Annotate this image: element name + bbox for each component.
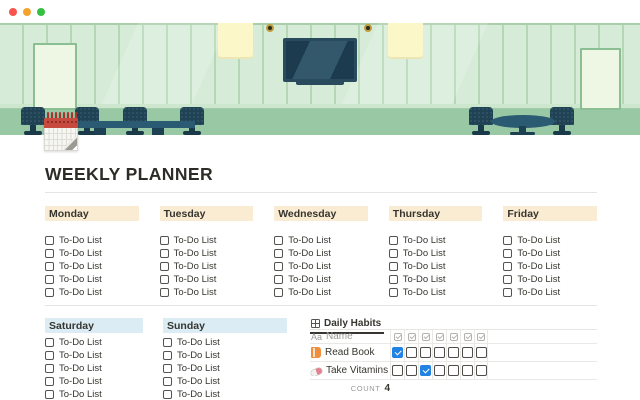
day-column-tuesday: TuesdayTo-Do ListTo-Do ListTo-Do ListTo-… <box>160 206 254 298</box>
todo-item: To-Do List <box>503 247 597 260</box>
todo-list: To-Do ListTo-Do ListTo-Do ListTo-Do List… <box>45 234 139 298</box>
traffic-light-zoom-button[interactable] <box>37 8 45 16</box>
todo-checkbox[interactable] <box>274 288 283 297</box>
todo-list: To-Do ListTo-Do ListTo-Do ListTo-Do List… <box>45 336 143 400</box>
day-column-sunday: SundayTo-Do ListTo-Do ListTo-Do ListTo-D… <box>163 318 287 400</box>
todo-label: To-Do List <box>517 248 560 259</box>
habit-checkbox[interactable] <box>420 365 431 376</box>
count-value: 4 <box>384 383 390 394</box>
habits-header-row: Aa Name <box>310 330 597 344</box>
day-column-wednesday: WednesdayTo-Do ListTo-Do ListTo-Do ListT… <box>274 206 368 298</box>
wall-tv <box>283 38 357 82</box>
habit-checkbox[interactable] <box>420 347 431 358</box>
todo-label: To-Do List <box>403 261 446 272</box>
todo-checkbox[interactable] <box>503 249 512 258</box>
todo-checkbox[interactable] <box>45 236 54 245</box>
todo-label: To-Do List <box>288 235 331 246</box>
todo-label: To-Do List <box>59 235 102 246</box>
office-chair <box>21 107 45 135</box>
book-icon <box>311 347 321 358</box>
checkbox-property-icon <box>422 333 430 341</box>
bottom-section: SaturdayTo-Do ListTo-Do ListTo-Do ListTo… <box>45 318 597 400</box>
todo-item: To-Do List <box>274 260 368 273</box>
habit-checkbox-cell <box>390 344 404 361</box>
todo-item: To-Do List <box>389 286 483 299</box>
habit-checkbox-cell <box>390 362 404 379</box>
todo-item: To-Do List <box>389 260 483 273</box>
todo-label: To-Do List <box>174 274 217 285</box>
habit-day-column-header[interactable] <box>418 330 432 343</box>
day-header: Saturday <box>45 318 143 333</box>
todo-item: To-Do List <box>503 286 597 299</box>
todo-item: To-Do List <box>160 247 254 260</box>
todo-label: To-Do List <box>517 287 560 298</box>
day-header: Friday <box>503 206 597 221</box>
todo-item: To-Do List <box>503 273 597 286</box>
tab-label: Daily Habits <box>324 318 381 329</box>
checkbox-property-icon <box>477 333 485 341</box>
wall-clock-dot-right <box>364 24 372 32</box>
habit-checkbox[interactable] <box>462 347 473 358</box>
todo-checkbox[interactable] <box>163 351 172 360</box>
habit-name-label: Read Book <box>325 347 374 358</box>
habit-checkbox[interactable] <box>476 365 487 376</box>
todo-checkbox[interactable] <box>163 364 172 373</box>
todo-label: To-Do List <box>517 261 560 272</box>
todo-checkbox[interactable] <box>45 390 54 399</box>
day-column-monday: MondayTo-Do ListTo-Do ListTo-Do ListTo-D… <box>45 206 139 298</box>
habit-name-cell[interactable]: Read Book <box>310 347 390 358</box>
day-header: Tuesday <box>160 206 254 221</box>
todo-label: To-Do List <box>59 274 102 285</box>
todo-checkbox[interactable] <box>274 262 283 271</box>
todo-item: To-Do List <box>45 336 143 349</box>
todo-item: To-Do List <box>503 260 597 273</box>
habit-checkbox[interactable] <box>448 365 459 376</box>
habit-checkbox[interactable] <box>392 365 403 376</box>
todo-checkbox[interactable] <box>45 351 54 360</box>
todo-list: To-Do ListTo-Do ListTo-Do ListTo-Do List… <box>503 234 597 298</box>
habit-checkbox[interactable] <box>434 347 445 358</box>
habit-day-column-header[interactable] <box>446 330 460 343</box>
habit-checkbox-cell <box>404 344 418 361</box>
habit-day-column-header[interactable] <box>460 330 474 343</box>
todo-label: To-Do List <box>59 287 102 298</box>
todo-label: To-Do List <box>174 248 217 259</box>
todo-item: To-Do List <box>163 362 287 375</box>
todo-label: To-Do List <box>174 287 217 298</box>
todo-label: To-Do List <box>174 235 217 246</box>
todo-item: To-Do List <box>45 234 139 247</box>
header-cover-illustration <box>0 23 640 135</box>
habit-checkbox-cell <box>432 362 446 379</box>
habit-checkbox[interactable] <box>392 347 403 358</box>
todo-item: To-Do List <box>274 247 368 260</box>
habit-checkbox[interactable] <box>476 347 487 358</box>
habit-name-cell[interactable]: Take Vitamins <box>310 365 390 376</box>
todo-checkbox[interactable] <box>389 249 398 258</box>
checkbox-property-icon <box>450 333 458 341</box>
day-header: Thursday <box>389 206 483 221</box>
habit-checkbox-cell <box>474 362 488 379</box>
day-header: Monday <box>45 206 139 221</box>
habit-checkbox-cell <box>418 344 432 361</box>
table-leg <box>94 128 106 135</box>
todo-label: To-Do List <box>288 274 331 285</box>
habit-checkbox[interactable] <box>406 365 417 376</box>
todo-item: To-Do List <box>45 362 143 375</box>
todo-item: To-Do List <box>45 388 143 400</box>
todo-list: To-Do ListTo-Do ListTo-Do ListTo-Do List… <box>160 234 254 298</box>
habit-checkbox-cell <box>418 362 432 379</box>
todo-checkbox[interactable] <box>163 338 172 347</box>
notion-weekly-planner-page: WEEKLY PLANNER MondayTo-Do ListTo-Do Lis… <box>0 0 640 400</box>
habit-checkbox-cell <box>446 344 460 361</box>
todo-label: To-Do List <box>59 337 102 348</box>
habit-checkbox-cell <box>474 344 488 361</box>
todo-item: To-Do List <box>45 375 143 388</box>
todo-checkbox[interactable] <box>389 288 398 297</box>
checkbox-property-icon <box>408 333 416 341</box>
whiteboard-left <box>33 43 77 110</box>
habit-row: Take Vitamins <box>310 362 597 380</box>
day-header: Wednesday <box>274 206 368 221</box>
traffic-light-minimize-button[interactable] <box>23 8 31 16</box>
habit-checkbox[interactable] <box>462 365 473 376</box>
todo-checkbox[interactable] <box>45 249 54 258</box>
chair-base <box>126 131 144 135</box>
todo-item: To-Do List <box>274 286 368 299</box>
calendar-red-band <box>44 118 78 128</box>
table-leg <box>152 128 164 135</box>
window-titlebar <box>0 0 640 23</box>
pill-icon <box>310 367 322 376</box>
todo-label: To-Do List <box>403 274 446 285</box>
habit-checkbox-cell <box>446 362 460 379</box>
todo-list: To-Do ListTo-Do ListTo-Do ListTo-Do List… <box>389 234 483 298</box>
todo-label: To-Do List <box>59 363 102 374</box>
todo-item: To-Do List <box>163 375 287 388</box>
name-header-label: Name <box>326 331 353 342</box>
tv-screen <box>286 41 354 79</box>
habit-checkbox-cell <box>432 344 446 361</box>
name-column-header[interactable]: Aa Name <box>310 331 390 342</box>
todo-item: To-Do List <box>160 286 254 299</box>
text-property-icon: Aa <box>311 332 322 342</box>
chair-base <box>24 131 42 135</box>
tv-base <box>296 82 344 85</box>
chair-back <box>469 107 493 125</box>
chair-base <box>472 131 490 135</box>
todo-item: To-Do List <box>45 349 143 362</box>
habit-checkbox[interactable] <box>434 365 445 376</box>
day-header: Sunday <box>163 318 287 333</box>
todo-label: To-Do List <box>174 261 217 272</box>
todo-label: To-Do List <box>288 248 331 259</box>
habit-checkbox[interactable] <box>448 347 459 358</box>
checkbox-property-icon <box>394 333 402 341</box>
todo-checkbox[interactable] <box>160 288 169 297</box>
todo-checkbox[interactable] <box>274 236 283 245</box>
day-column-saturday: SaturdayTo-Do ListTo-Do ListTo-Do ListTo… <box>45 318 143 400</box>
todo-item: To-Do List <box>389 247 483 260</box>
todo-list: To-Do ListTo-Do ListTo-Do ListTo-Do List… <box>274 234 368 298</box>
todo-checkbox[interactable] <box>274 249 283 258</box>
habit-checkbox-cell <box>460 362 474 379</box>
todo-label: To-Do List <box>177 363 220 374</box>
todo-item: To-Do List <box>503 234 597 247</box>
todo-checkbox[interactable] <box>503 288 512 297</box>
todo-checkbox[interactable] <box>45 275 54 284</box>
todo-checkbox[interactable] <box>45 288 54 297</box>
todo-checkbox[interactable] <box>45 338 54 347</box>
habit-checkbox-cell <box>404 362 418 379</box>
todo-checkbox[interactable] <box>160 262 169 271</box>
divider <box>45 192 597 193</box>
todo-checkbox[interactable] <box>160 236 169 245</box>
checkbox-property-icon <box>436 333 444 341</box>
page-title: WEEKLY PLANNER <box>45 164 213 185</box>
todo-label: To-Do List <box>59 350 102 361</box>
todo-item: To-Do List <box>163 349 287 362</box>
todo-label: To-Do List <box>288 287 331 298</box>
todo-checkbox[interactable] <box>163 377 172 386</box>
todo-label: To-Do List <box>177 350 220 361</box>
chair-base <box>183 131 201 135</box>
table-view-icon <box>311 319 320 328</box>
chair-base <box>553 131 571 135</box>
wall-clock-dot-left <box>266 24 274 32</box>
todo-checkbox[interactable] <box>503 262 512 271</box>
todo-checkbox[interactable] <box>503 236 512 245</box>
todo-item: To-Do List <box>274 234 368 247</box>
office-chair <box>469 107 493 135</box>
todo-item: To-Do List <box>389 234 483 247</box>
calendar-folded-corner <box>64 137 77 150</box>
todo-checkbox[interactable] <box>45 377 54 386</box>
habit-day-column-header[interactable] <box>474 330 488 343</box>
habit-checkbox-cell <box>460 344 474 361</box>
checkbox-property-icon <box>464 333 472 341</box>
todo-checkbox[interactable] <box>160 249 169 258</box>
habit-row: Read Book <box>310 344 597 362</box>
divider <box>45 305 597 306</box>
todo-label: To-Do List <box>403 248 446 259</box>
day-column-thursday: ThursdayTo-Do ListTo-Do ListTo-Do ListTo… <box>389 206 483 298</box>
todo-item: To-Do List <box>45 286 139 299</box>
todo-checkbox[interactable] <box>389 262 398 271</box>
habits-tab-bar: Daily Habits <box>310 315 597 330</box>
habit-name-label: Take Vitamins <box>326 365 388 376</box>
table-count-footer[interactable]: COUNT 4 <box>310 380 390 394</box>
traffic-light-close-button[interactable] <box>9 8 17 16</box>
todo-item: To-Do List <box>389 273 483 286</box>
todo-item: To-Do List <box>163 388 287 400</box>
round-table-base <box>510 132 535 135</box>
todo-checkbox[interactable] <box>274 275 283 284</box>
todo-label: To-Do List <box>59 376 102 387</box>
todo-checkbox[interactable] <box>45 364 54 373</box>
todo-checkbox[interactable] <box>45 262 54 271</box>
todo-label: To-Do List <box>59 261 102 272</box>
todo-label: To-Do List <box>177 376 220 387</box>
count-label: COUNT <box>351 384 381 393</box>
todo-item: To-Do List <box>163 336 287 349</box>
todo-item: To-Do List <box>274 273 368 286</box>
todo-checkbox[interactable] <box>163 390 172 399</box>
daily-habits-table: Daily Habits Aa Name Read BookTake Vitam… <box>310 315 597 394</box>
todo-list: To-Do ListTo-Do ListTo-Do ListTo-Do List… <box>163 336 287 400</box>
light-panel-right <box>388 23 423 59</box>
day-column-friday: FridayTo-Do ListTo-Do ListTo-Do ListTo-D… <box>503 206 597 298</box>
todo-item: To-Do List <box>45 273 139 286</box>
todo-label: To-Do List <box>177 389 220 400</box>
todo-checkbox[interactable] <box>503 275 512 284</box>
todo-label: To-Do List <box>403 235 446 246</box>
todo-item: To-Do List <box>160 234 254 247</box>
todo-item: To-Do List <box>45 260 139 273</box>
chair-back <box>21 107 45 125</box>
calendar-page-icon[interactable] <box>44 112 78 151</box>
todo-label: To-Do List <box>403 287 446 298</box>
habit-day-column-header[interactable] <box>404 330 418 343</box>
todo-label: To-Do List <box>517 274 560 285</box>
light-panel-left <box>218 23 253 59</box>
weekday-columns: MondayTo-Do ListTo-Do ListTo-Do ListTo-D… <box>45 206 597 298</box>
todo-item: To-Do List <box>45 247 139 260</box>
todo-checkbox[interactable] <box>160 275 169 284</box>
todo-label: To-Do List <box>59 389 102 400</box>
todo-item: To-Do List <box>160 273 254 286</box>
habit-checkbox[interactable] <box>406 347 417 358</box>
todo-label: To-Do List <box>288 261 331 272</box>
todo-checkbox[interactable] <box>389 236 398 245</box>
todo-item: To-Do List <box>160 260 254 273</box>
whiteboard-right <box>580 48 621 110</box>
habit-day-column-header[interactable] <box>432 330 446 343</box>
conference-table <box>58 121 195 128</box>
habit-day-column-header[interactable] <box>390 330 404 343</box>
todo-label: To-Do List <box>177 337 220 348</box>
todo-checkbox[interactable] <box>389 275 398 284</box>
todo-label: To-Do List <box>59 248 102 259</box>
todo-label: To-Do List <box>517 235 560 246</box>
